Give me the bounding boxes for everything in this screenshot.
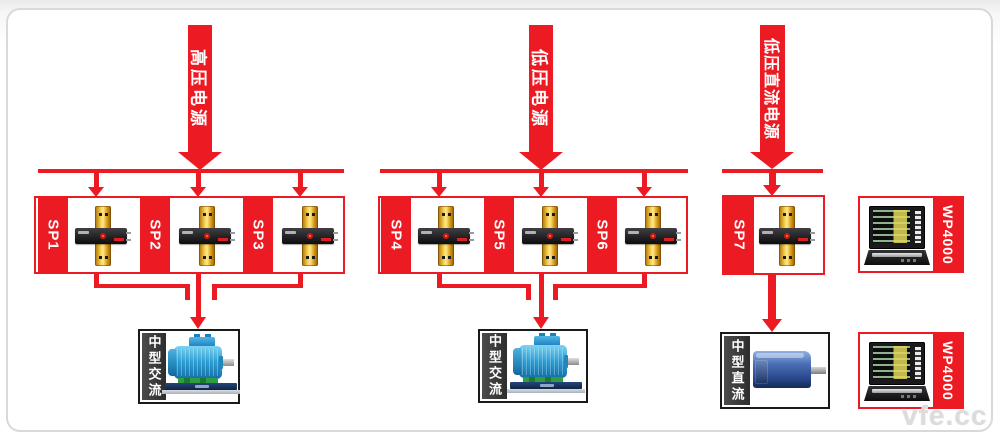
sp5-transducer xyxy=(522,205,578,267)
analyzer-base-icon xyxy=(864,386,930,401)
feed-arrowhead-g3-icon xyxy=(762,319,782,332)
sp1-sensor-body-icon xyxy=(75,228,127,244)
dc-motor-image xyxy=(751,348,829,394)
analyzer-1-strip: WP4000 xyxy=(933,198,962,271)
sp7-strip: SP7 xyxy=(724,197,754,273)
merge-line-g2-center xyxy=(539,274,544,318)
analyzer-1-label: WP4000 xyxy=(940,205,956,265)
sp6-label: SP6 xyxy=(594,219,611,250)
sp3-transducer xyxy=(282,205,338,267)
ac-motor-image-1 xyxy=(165,337,237,397)
sp7-transducer xyxy=(759,205,815,267)
merge-line-g1-right-h xyxy=(212,284,303,288)
sp4-transducer xyxy=(418,205,474,267)
sp3-label: SP3 xyxy=(250,219,267,250)
sp4-strip: SP4 xyxy=(381,198,411,272)
hv-supply-label: 高压电源 xyxy=(188,49,213,129)
merge-line-g2-right-drop xyxy=(553,284,558,300)
branch-arrow-sp3 xyxy=(298,173,303,187)
watermark: vfe.cc xyxy=(902,400,987,432)
load-2-label: 中型交流 xyxy=(482,333,507,399)
merge-line-g1-right-drop xyxy=(212,284,217,300)
sp1-label: SP1 xyxy=(45,219,62,250)
analyzer-screen-icon xyxy=(869,206,925,249)
sensor-group-lvdc: SP7 xyxy=(722,195,825,275)
branch-arrow-sp5 xyxy=(539,173,544,187)
analyzer-box-2: WP4000 xyxy=(858,332,964,409)
sp5-label: SP5 xyxy=(491,219,508,250)
lv-supply-arrowhead-icon xyxy=(519,152,563,170)
sp4-label: SP4 xyxy=(388,219,405,250)
lvdc-supply-label: 低压直流电源 xyxy=(761,37,785,139)
sp3-strip: SP3 xyxy=(243,198,273,272)
analyzer-box-1: WP4000 xyxy=(858,196,964,273)
hv-supply-banner: 高压电源 xyxy=(188,25,212,152)
sp6-transducer xyxy=(625,205,681,267)
sp2-transducer xyxy=(179,205,235,267)
sp2-label: SP2 xyxy=(147,219,164,250)
sp1-transducer xyxy=(75,205,131,267)
merge-line-g1-left-drop xyxy=(185,284,190,300)
analyzer-2-label: WP4000 xyxy=(940,341,956,401)
branch-arrow-sp1 xyxy=(94,173,99,187)
load-3-strip: 中型直流 xyxy=(724,336,750,405)
sp5-strip: SP5 xyxy=(484,198,514,272)
sp3-sensor-body-icon xyxy=(282,228,334,244)
feed-line-g3 xyxy=(768,275,776,319)
load-2-strip: 中型交流 xyxy=(482,333,507,399)
sp4-sensor-body-icon xyxy=(418,228,470,244)
sensor-group-hv: SP1 SP2 SP3 xyxy=(34,196,345,274)
analyzer-screen-icon xyxy=(869,342,925,385)
load-3-label: 中型直流 xyxy=(724,336,750,405)
hv-supply-arrowhead-icon xyxy=(178,152,222,170)
sp1-strip: SP1 xyxy=(38,198,68,272)
merge-line-g2-right-h xyxy=(553,284,647,288)
sp6-sensor-body-icon xyxy=(625,228,677,244)
ac-motor-image-2 xyxy=(510,336,582,396)
sp7-label: SP7 xyxy=(731,219,748,250)
sp5-sensor-body-icon xyxy=(522,228,574,244)
lv-supply-label: 低压电源 xyxy=(529,49,554,129)
branch-arrow-sp6 xyxy=(642,173,647,187)
sp2-sensor-body-icon xyxy=(179,228,231,244)
wp4000-analyzer-device-1 xyxy=(864,205,930,265)
wp4000-analyzer-device-2 xyxy=(864,341,930,401)
sp7-sensor-body-icon xyxy=(759,228,811,244)
lvdc-supply-arrowhead-icon xyxy=(750,152,794,169)
merge-line-g2-left-h xyxy=(437,284,531,288)
load-box-dc: 中型直流 xyxy=(720,332,830,409)
branch-arrow-sp2 xyxy=(196,173,201,187)
diagram-canvas: 高压电源 低压电源 低压直流电源 SP1 SP2 xyxy=(0,0,1000,444)
lv-supply-banner: 低压电源 xyxy=(529,25,553,152)
merge-line-g1-left-h xyxy=(94,284,190,288)
sp2-strip: SP2 xyxy=(140,198,170,272)
branch-arrow-sp4 xyxy=(437,173,442,187)
load-box-ac-1: 中型交流 xyxy=(138,329,240,404)
branch-arrow-sp7 xyxy=(769,173,776,185)
merge-arrowhead-g1-icon xyxy=(190,317,206,329)
lvdc-supply-banner: 低压直流电源 xyxy=(760,25,785,152)
load-box-ac-2: 中型交流 xyxy=(478,329,588,403)
merge-arrowhead-g2-icon xyxy=(533,317,549,329)
analyzer-base-icon xyxy=(864,250,930,265)
merge-line-g1-center xyxy=(196,274,201,318)
sensor-group-lv: SP4 SP5 SP6 xyxy=(378,196,688,274)
sp6-strip: SP6 xyxy=(587,198,617,272)
analyzer-2-strip: WP4000 xyxy=(933,334,962,407)
merge-line-g2-left-drop xyxy=(526,284,531,300)
